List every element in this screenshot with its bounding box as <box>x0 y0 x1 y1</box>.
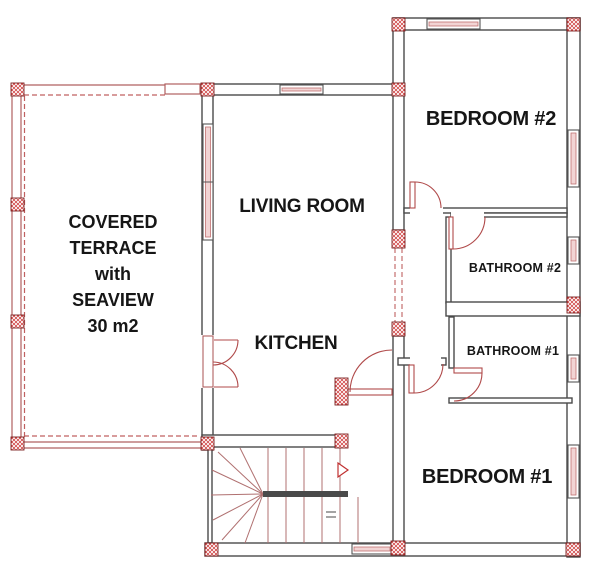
terrace-rail-window <box>165 84 200 94</box>
dashed-opening <box>395 248 402 322</box>
terrace-label-line2: TERRACE <box>38 235 188 261</box>
terrace-label: COVERED TERRACE with SEAVIEW 30 m2 <box>38 209 188 339</box>
window-east-bedroom2 <box>568 130 579 187</box>
kitchen-label: KITCHEN <box>216 333 376 355</box>
door-bedroom2 <box>410 182 441 208</box>
door-bathroom1 <box>454 368 482 401</box>
wall-spine-upper <box>393 18 404 230</box>
bedroom1-label: BEDROOM #1 <box>407 466 567 489</box>
terrace-label-line1: COVERED <box>38 209 188 235</box>
column-icon <box>392 83 405 96</box>
column-icon <box>11 437 24 450</box>
column-icon <box>205 543 218 556</box>
door-hall-bedroom1 <box>409 364 443 393</box>
column-icon <box>392 322 405 336</box>
column-icon <box>335 378 348 405</box>
window-east-bedroom1 <box>568 445 579 498</box>
terrace-label-line4: SEAVIEW <box>38 287 188 313</box>
column-icon <box>392 230 405 248</box>
wall-bathroom1-bottom <box>449 398 572 403</box>
column-icon <box>566 543 580 556</box>
floor-plan: COVERED TERRACE with SEAVIEW 30 m2 LIVIN… <box>0 0 600 567</box>
column-icon <box>11 83 24 96</box>
window-bottom-bedroom1 <box>352 544 392 554</box>
bathroom1-label: BATHROOM #1 <box>453 344 573 358</box>
column-icon <box>11 315 24 328</box>
window-bedroom2-top <box>427 19 480 29</box>
window-living-top <box>280 85 323 94</box>
column-icon <box>201 83 214 96</box>
living-room-label: LIVING ROOM <box>222 196 382 218</box>
door-bathroom2 <box>449 217 485 249</box>
wall-bedroom2-top <box>393 18 580 30</box>
stair-break-mark <box>326 512 336 517</box>
stair-treads-lower <box>268 497 358 543</box>
stair-direction-arrow-icon <box>338 463 348 477</box>
column-icon <box>335 434 348 448</box>
wall-bathroom1-left <box>449 317 454 368</box>
column-icon <box>567 18 580 31</box>
wall-spine-lower <box>393 336 404 543</box>
window-terrace-living <box>203 124 213 240</box>
door-kitchen-hall <box>348 350 392 395</box>
column-icon <box>201 437 214 450</box>
bathroom2-label: BATHROOM #2 <box>455 261 575 275</box>
bedroom2-label: BEDROOM #2 <box>411 108 571 131</box>
stair-winder-fan <box>211 448 263 543</box>
column-icon <box>392 18 405 31</box>
column-icon <box>391 541 405 555</box>
wall-kitchen-bottom <box>202 435 342 447</box>
window-east-bathroom2 <box>568 237 579 264</box>
wall-bathrooms-divider <box>446 302 580 316</box>
stair-landing-rail <box>263 491 348 497</box>
terrace-label-line3: with <box>38 261 188 287</box>
terrace-label-line5: 30 m2 <box>38 313 188 339</box>
column-icon <box>11 198 24 211</box>
window-east-bathroom1 <box>568 355 579 382</box>
stair-treads-upper <box>268 448 340 491</box>
column-icon <box>567 297 580 313</box>
stairs <box>211 448 358 543</box>
